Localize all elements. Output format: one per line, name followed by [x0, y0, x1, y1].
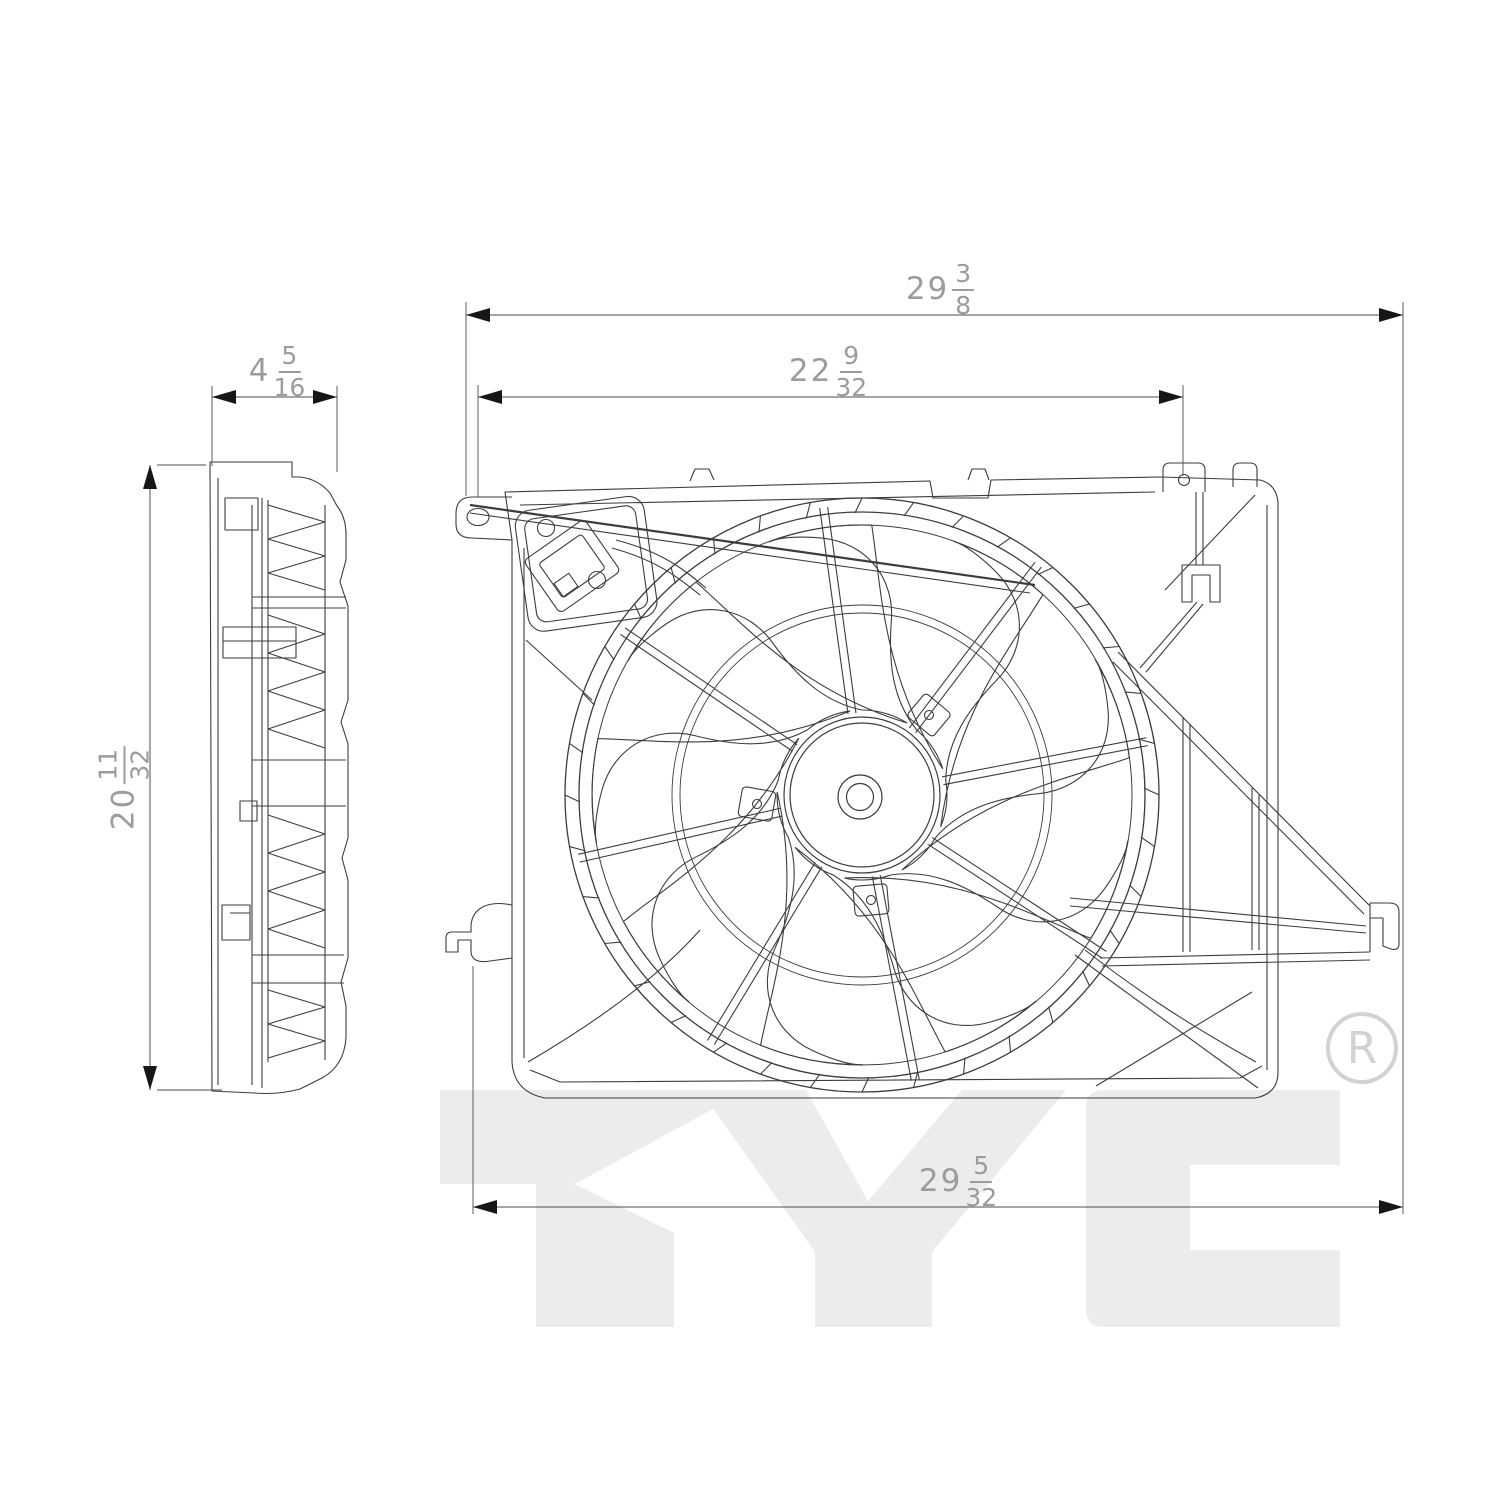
technical-drawing-canvas: 29 3 8 22 9 32 4 5 16 20 11 32 29 5 32 R [0, 0, 1500, 1500]
hook-left [446, 904, 512, 962]
mount-hole-top-right [1179, 475, 1190, 486]
side-ribs-4 [268, 990, 325, 1058]
fan-ring-serrations [565, 498, 1159, 1092]
fan-ring [565, 498, 1159, 1092]
mount-tab-top-right2 [1233, 463, 1257, 487]
dim-side-whole: 4 [249, 356, 271, 387]
fan-blades [546, 481, 1164, 1104]
dimension-label-side-depth: 4 5 16 [249, 343, 306, 400]
registered-letter: R [1347, 1023, 1378, 1074]
watermark-letter-t-stem [536, 1184, 674, 1327]
dim-bottom-whole: 29 [919, 1166, 962, 1197]
mount-tab-top-left [456, 497, 512, 540]
watermark-letter-t-bar [440, 1090, 748, 1184]
dim-height-fraction: 11 32 [96, 746, 153, 784]
mount-hole-top-left [467, 509, 489, 526]
hub-center-boss [838, 775, 882, 819]
watermark-letter-c [1086, 1090, 1340, 1327]
dim-side-fraction: 5 16 [273, 343, 305, 400]
watermark-logo [440, 1090, 1340, 1327]
front-view-shroud [446, 463, 1399, 1098]
dimension-lines [150, 302, 1403, 1214]
side-view [210, 462, 348, 1094]
motor-hub [784, 717, 940, 873]
dim-top-whole: 29 [906, 274, 949, 305]
dim-bottom-fraction: 5 32 [965, 1153, 997, 1210]
dim-top-fraction: 3 8 [952, 261, 974, 318]
dim-inner-fraction: 9 32 [835, 343, 867, 400]
bracket-truss-right [1070, 652, 1399, 966]
clip-top-right [1182, 565, 1220, 602]
watermark-letter-y [700, 1090, 1066, 1327]
dimension-label-top-width: 29 3 8 [906, 261, 974, 318]
side-ribs-3 [268, 815, 325, 948]
drawing-svg [0, 0, 1500, 1500]
dim-inner-whole: 22 [789, 356, 832, 387]
registered-trademark-icon: R [1326, 1012, 1398, 1084]
dimension-label-height: 20 11 32 [96, 746, 153, 830]
side-ribs-1 [268, 505, 325, 590]
dim-height-whole: 20 [109, 787, 140, 830]
hook-right [1370, 903, 1399, 952]
dimension-label-bottom-width: 29 5 32 [919, 1153, 997, 1210]
dimension-label-inner-width: 22 9 32 [789, 343, 867, 400]
side-view-outline [210, 462, 348, 1094]
